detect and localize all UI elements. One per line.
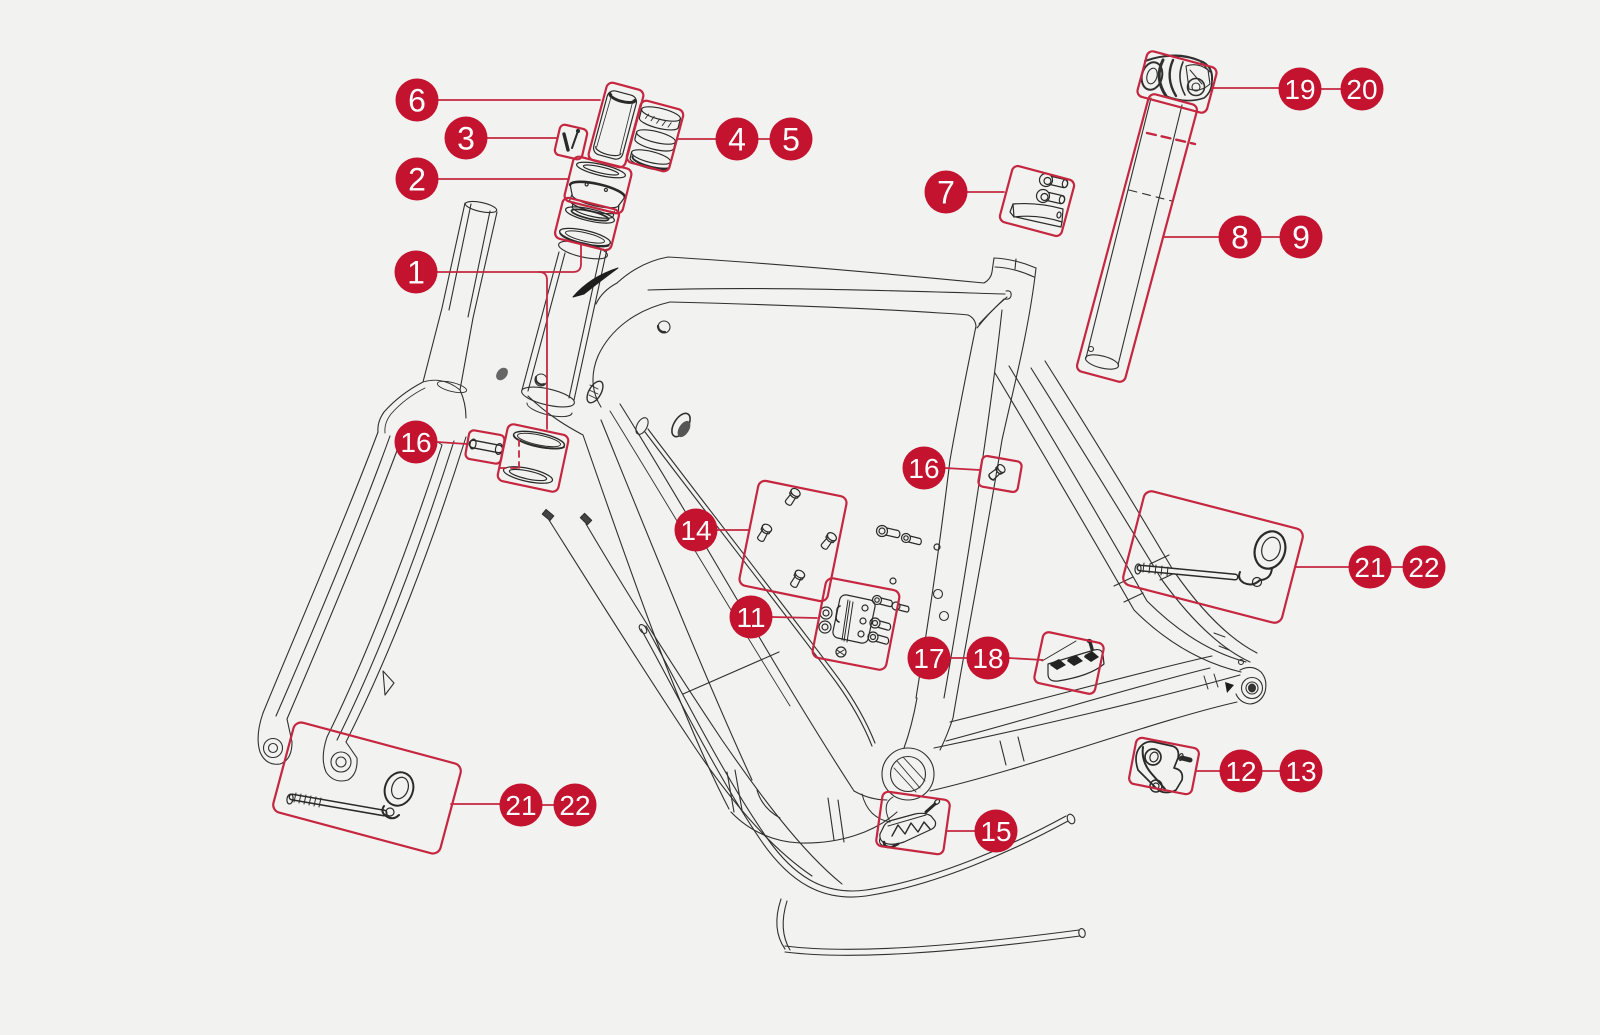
svg-text:15: 15 <box>980 816 1011 847</box>
svg-text:19: 19 <box>1284 74 1315 105</box>
svg-text:21: 21 <box>505 790 536 821</box>
svg-text:16: 16 <box>908 453 939 484</box>
svg-text:12: 12 <box>1225 756 1256 787</box>
svg-text:11: 11 <box>736 602 765 633</box>
svg-text:13: 13 <box>1285 756 1316 787</box>
svg-text:18: 18 <box>972 643 1003 674</box>
svg-text:22: 22 <box>1408 552 1439 583</box>
svg-text:6: 6 <box>408 83 426 119</box>
svg-text:14: 14 <box>680 515 711 546</box>
svg-text:22: 22 <box>559 790 590 821</box>
svg-text:17: 17 <box>913 643 944 674</box>
svg-text:3: 3 <box>457 121 475 157</box>
svg-text:8: 8 <box>1231 220 1249 256</box>
svg-text:9: 9 <box>1292 220 1310 256</box>
svg-text:1: 1 <box>407 255 425 291</box>
svg-text:5: 5 <box>782 122 800 158</box>
svg-text:21: 21 <box>1354 552 1385 583</box>
svg-text:2: 2 <box>408 162 426 198</box>
svg-text:4: 4 <box>728 122 746 158</box>
svg-text:20: 20 <box>1346 74 1377 105</box>
svg-text:7: 7 <box>937 175 955 211</box>
svg-text:16: 16 <box>400 427 431 458</box>
